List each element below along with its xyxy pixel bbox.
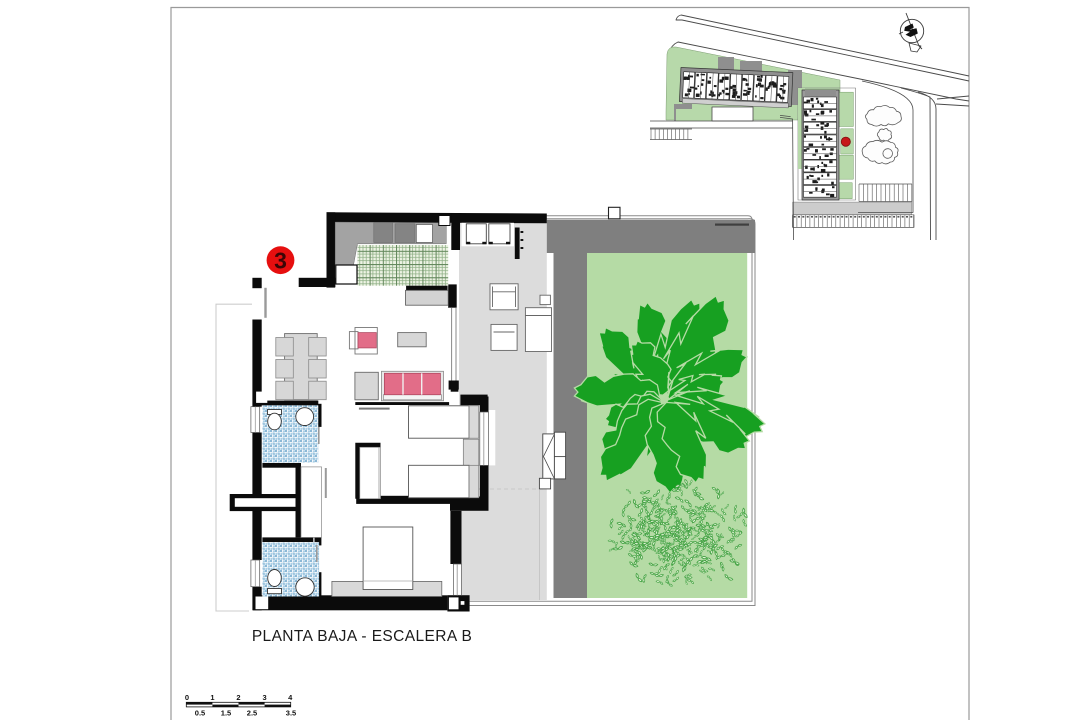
svg-text:3: 3 (274, 248, 287, 274)
svg-text:1: 1 (210, 693, 214, 702)
svg-text:2: 2 (236, 693, 240, 702)
svg-text:0: 0 (185, 693, 189, 702)
svg-text:1.5: 1.5 (221, 709, 231, 718)
svg-text:3.5: 3.5 (286, 709, 296, 718)
svg-text:2.5: 2.5 (247, 709, 257, 718)
svg-text:3: 3 (263, 693, 267, 702)
svg-text:0.5: 0.5 (195, 709, 205, 718)
svg-text:PLANTA BAJA - ESCALERA B: PLANTA BAJA - ESCALERA B (252, 628, 472, 645)
